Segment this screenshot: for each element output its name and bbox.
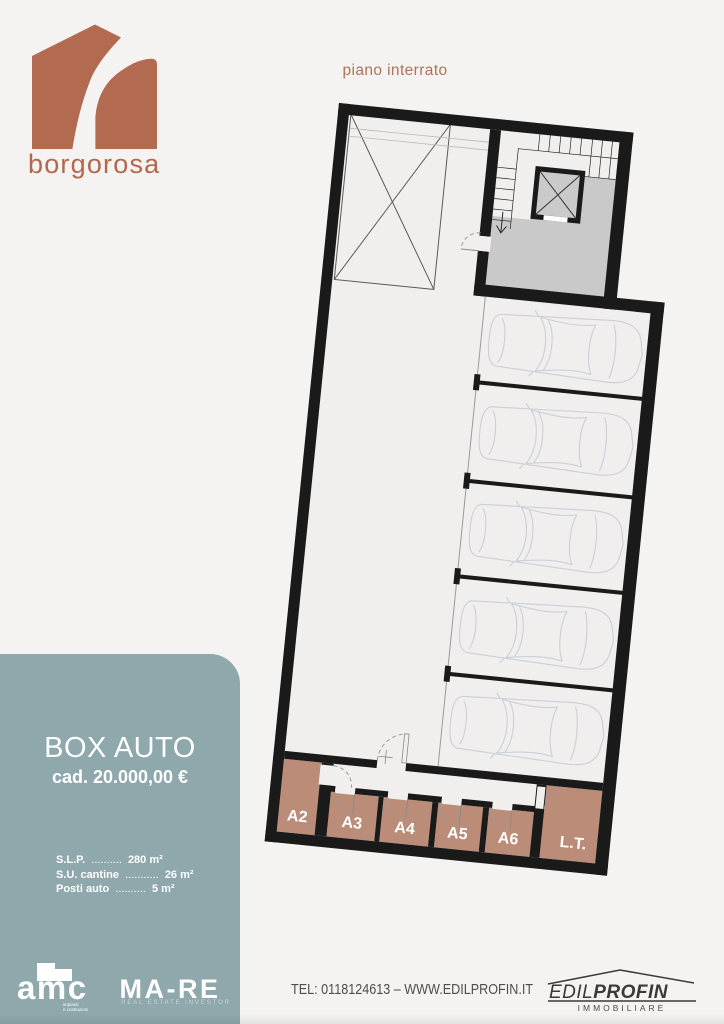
- svg-text:L.T.: L.T.: [559, 834, 587, 854]
- svg-text:A4: A4: [394, 819, 416, 838]
- svg-text:A3: A3: [341, 814, 363, 833]
- svg-text:A6: A6: [497, 830, 519, 849]
- svg-text:A2: A2: [286, 807, 308, 826]
- svg-text:A5: A5: [446, 825, 468, 844]
- svg-text:EDILPROFIN: EDILPROFIN: [549, 982, 669, 1003]
- svg-text:IMMOBILIARE: IMMOBILIARE: [578, 1003, 667, 1013]
- svg-text:amc: amc: [17, 969, 88, 1006]
- svg-text:e costruzioni: e costruzioni: [63, 1007, 88, 1012]
